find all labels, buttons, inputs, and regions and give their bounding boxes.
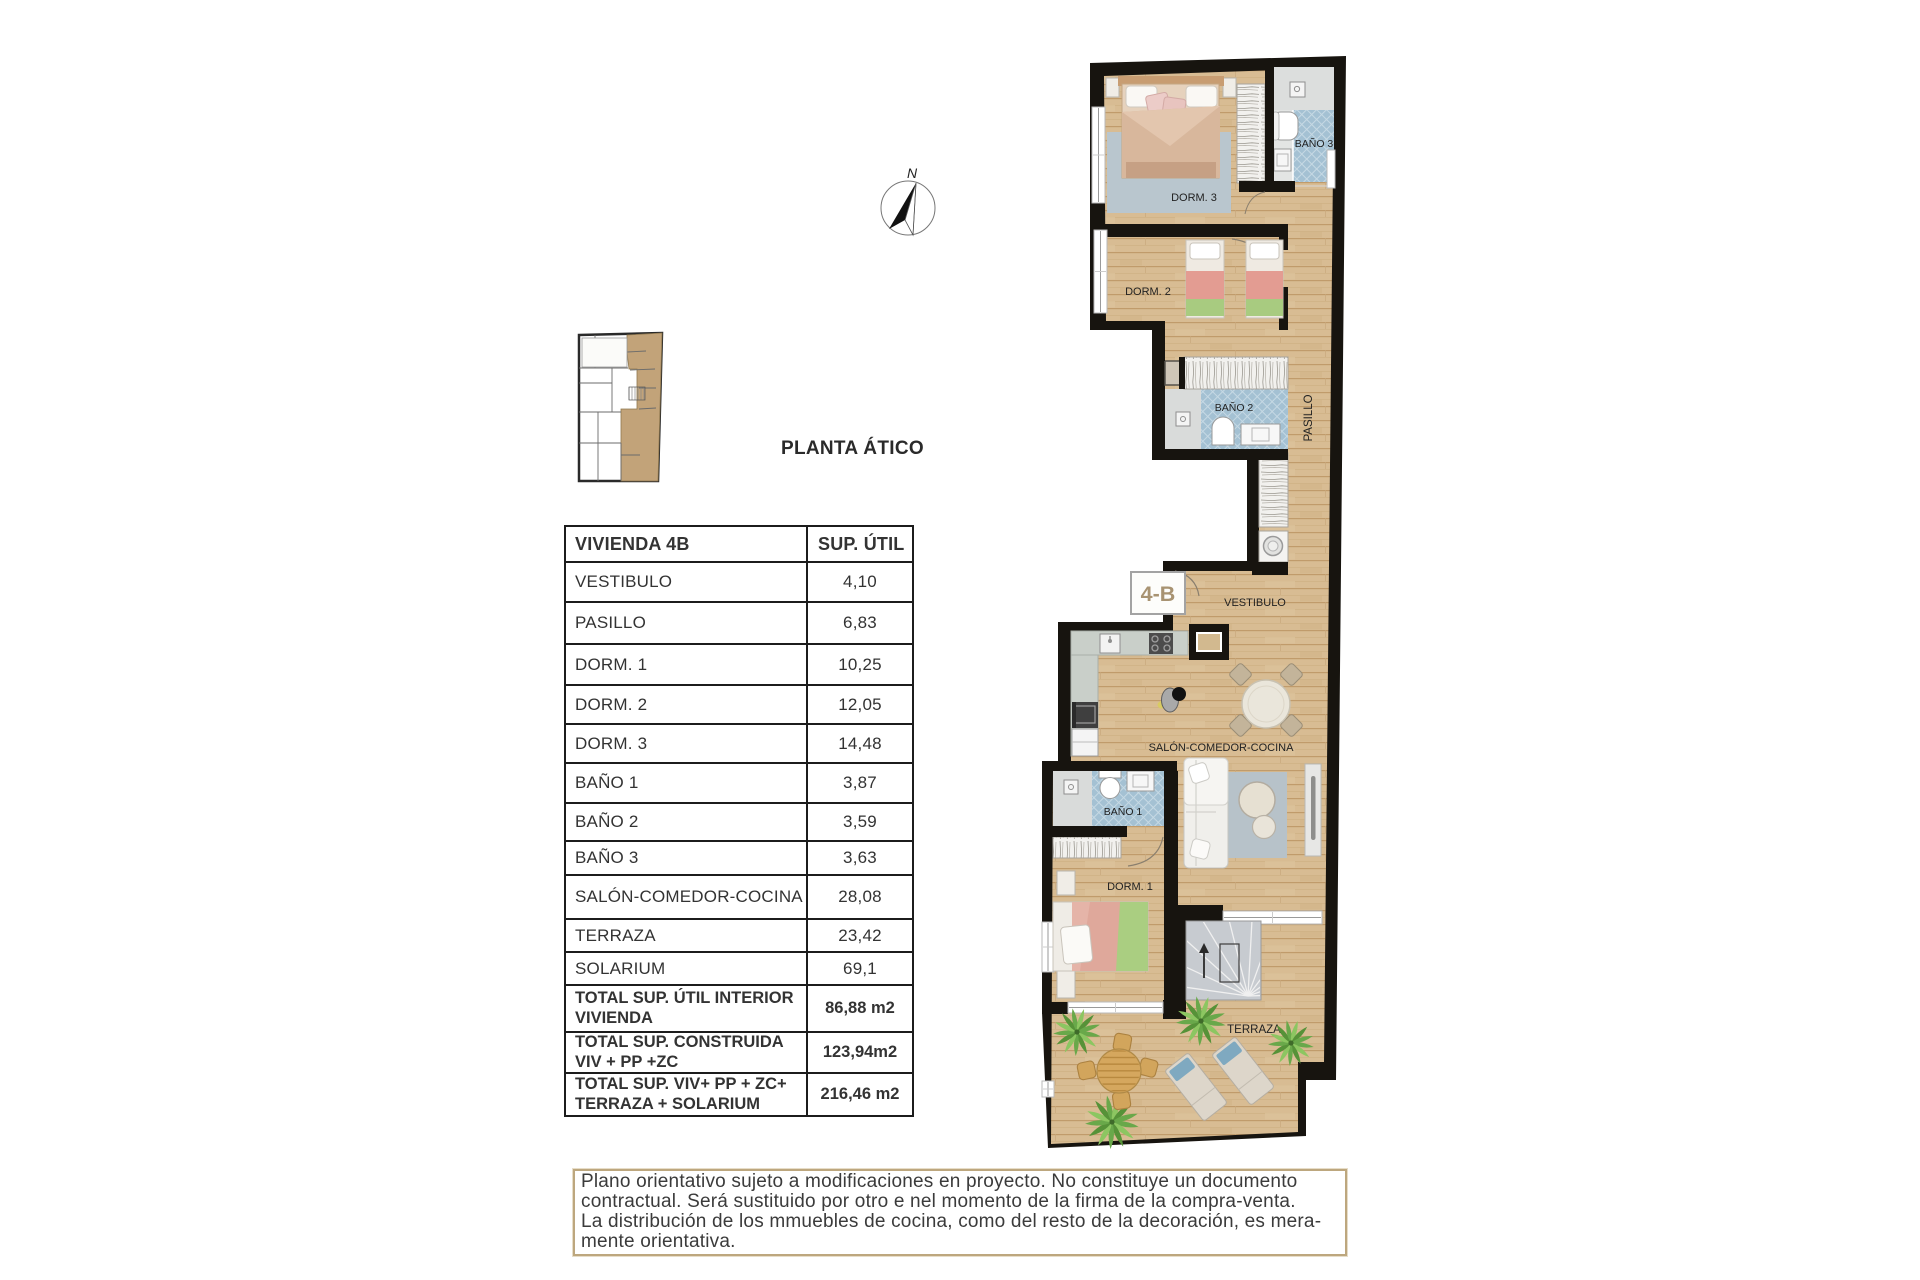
svg-text:VESTIBULO: VESTIBULO — [1224, 597, 1286, 609]
svg-text:BAÑO 2: BAÑO 2 — [1215, 401, 1254, 414]
svg-text:PASILLO: PASILLO — [1303, 394, 1315, 441]
svg-text:DORM. 1: DORM. 1 — [1107, 881, 1153, 893]
svg-text:SALÓN-COMEDOR-COCINA: SALÓN-COMEDOR-COCINA — [1149, 741, 1295, 754]
svg-text:N: N — [907, 165, 918, 181]
svg-text:DORM. 2: DORM. 2 — [1125, 286, 1171, 298]
svg-text:BAÑO 1: BAÑO 1 — [1104, 805, 1143, 818]
svg-text:BAÑO 3: BAÑO 3 — [1295, 137, 1334, 150]
svg-text:4-B: 4-B — [1141, 582, 1176, 606]
svg-text:DORM. 3: DORM. 3 — [1171, 192, 1217, 204]
